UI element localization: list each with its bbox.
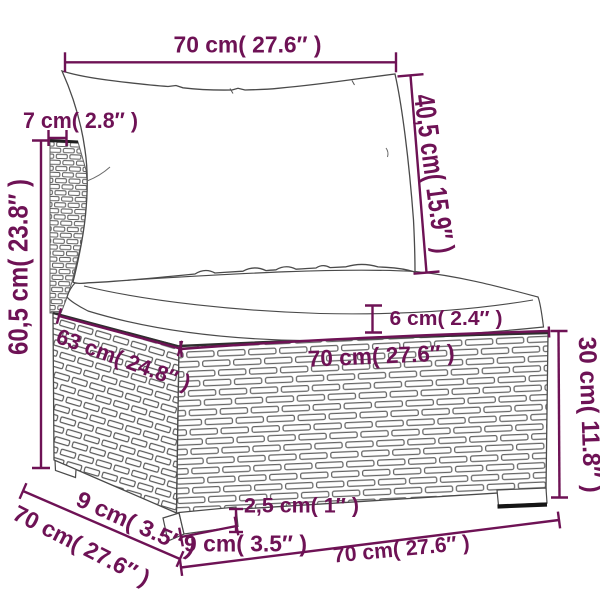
svg-text:2,5 cm( 1″ ): 2,5 cm( 1″ ) [244, 495, 359, 518]
svg-text:60,5 cm( 23.8″ ): 60,5 cm( 23.8″ ) [3, 179, 34, 355]
svg-text:6 cm( 2.4″ ): 6 cm( 2.4″ ) [390, 307, 503, 330]
svg-text:7 cm( 2.8″ ): 7 cm( 2.8″ ) [23, 108, 138, 133]
svg-text:70 cm( 27.6″ ): 70 cm( 27.6″ ) [174, 32, 322, 58]
svg-text:9 cm( 3.5″ ): 9 cm( 3.5″ ) [184, 531, 307, 557]
